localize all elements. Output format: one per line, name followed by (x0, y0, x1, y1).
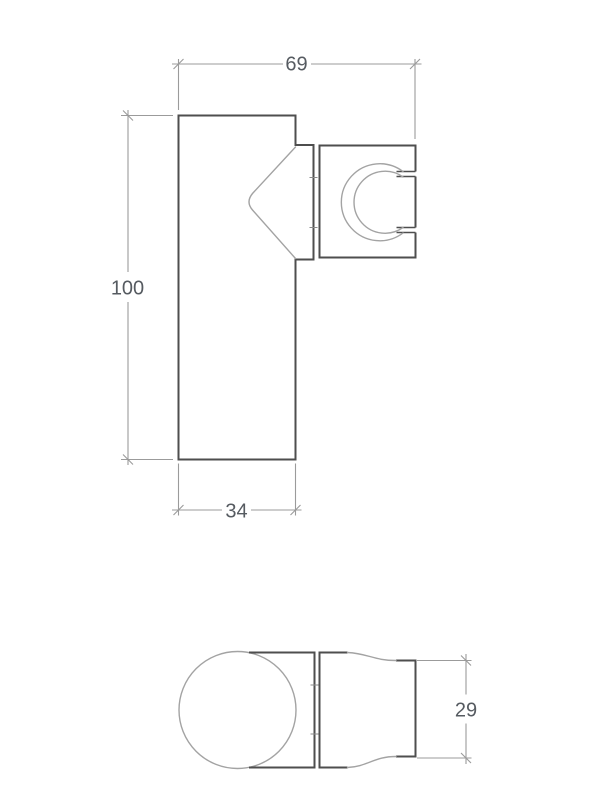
bottom-view-holder-top-curve (348, 653, 397, 661)
drawing-canvas: 69 100 34 29 (0, 0, 602, 800)
side-view-bracket-outline (320, 146, 416, 258)
dimension-label-base-depth: 34 (225, 501, 247, 523)
bottom-view-knob-circle (179, 652, 296, 769)
bottom-view-block-outline (249, 653, 315, 768)
dimension-label-holder-width: 29 (455, 700, 477, 722)
dimension-base-depth: 34 (172, 464, 302, 523)
bottom-view-holder-outline (320, 653, 416, 768)
dimension-overall-height: 100 (111, 110, 173, 465)
side-view-body-outline (179, 116, 314, 460)
side-view-clip-outer-arc (341, 164, 403, 241)
side-view-clip-inner-arc (354, 171, 403, 233)
side-view (179, 116, 416, 460)
technical-drawing: 69 100 34 29 (0, 0, 602, 800)
side-view-clip-slot-lines (397, 172, 416, 233)
bottom-view-holder-bottom-curve (348, 757, 397, 768)
dimension-label-overall-height: 100 (111, 278, 144, 300)
dimension-holder-width: 29 (417, 654, 477, 764)
dimension-label-overall-width: 69 (285, 54, 307, 76)
bottom-view (179, 652, 416, 769)
side-view-cone-profile (249, 147, 296, 259)
dimensions: 69 100 34 29 (111, 54, 477, 765)
dimension-overall-width: 69 (172, 54, 422, 140)
